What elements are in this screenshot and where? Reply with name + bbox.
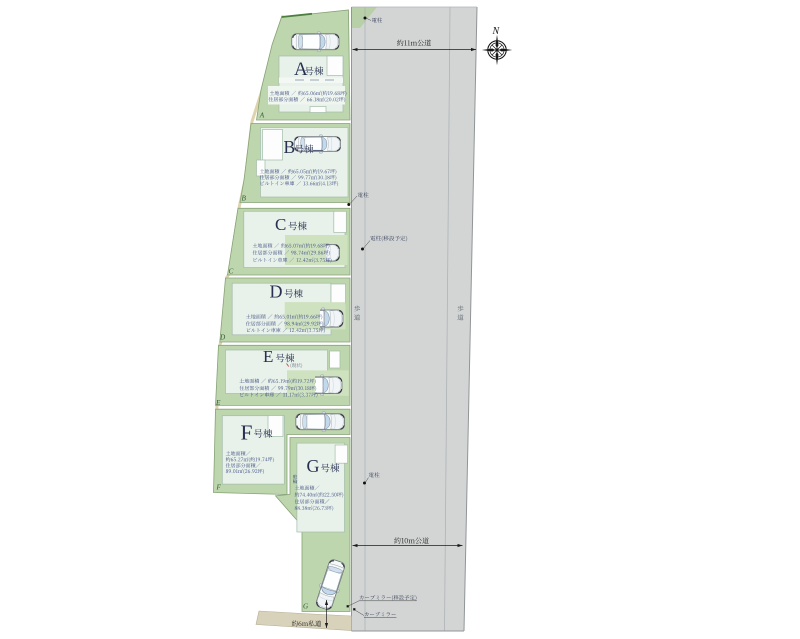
svg-text:G: G [307,456,320,476]
svg-text:E: E [263,347,273,366]
svg-text:B: B [242,194,247,202]
svg-text:F: F [216,483,222,491]
svg-text:N: N [492,26,501,37]
svg-text:F: F [241,421,253,445]
svg-text:E: E [215,399,221,407]
svg-text:A: A [294,59,308,80]
svg-text:B: B [284,137,296,157]
svg-text:C: C [229,268,234,276]
svg-text:C: C [275,215,286,234]
svg-text:D: D [270,282,283,302]
svg-text:A: A [259,112,265,120]
svg-text:G: G [303,602,309,610]
svg-text:D: D [219,334,226,342]
